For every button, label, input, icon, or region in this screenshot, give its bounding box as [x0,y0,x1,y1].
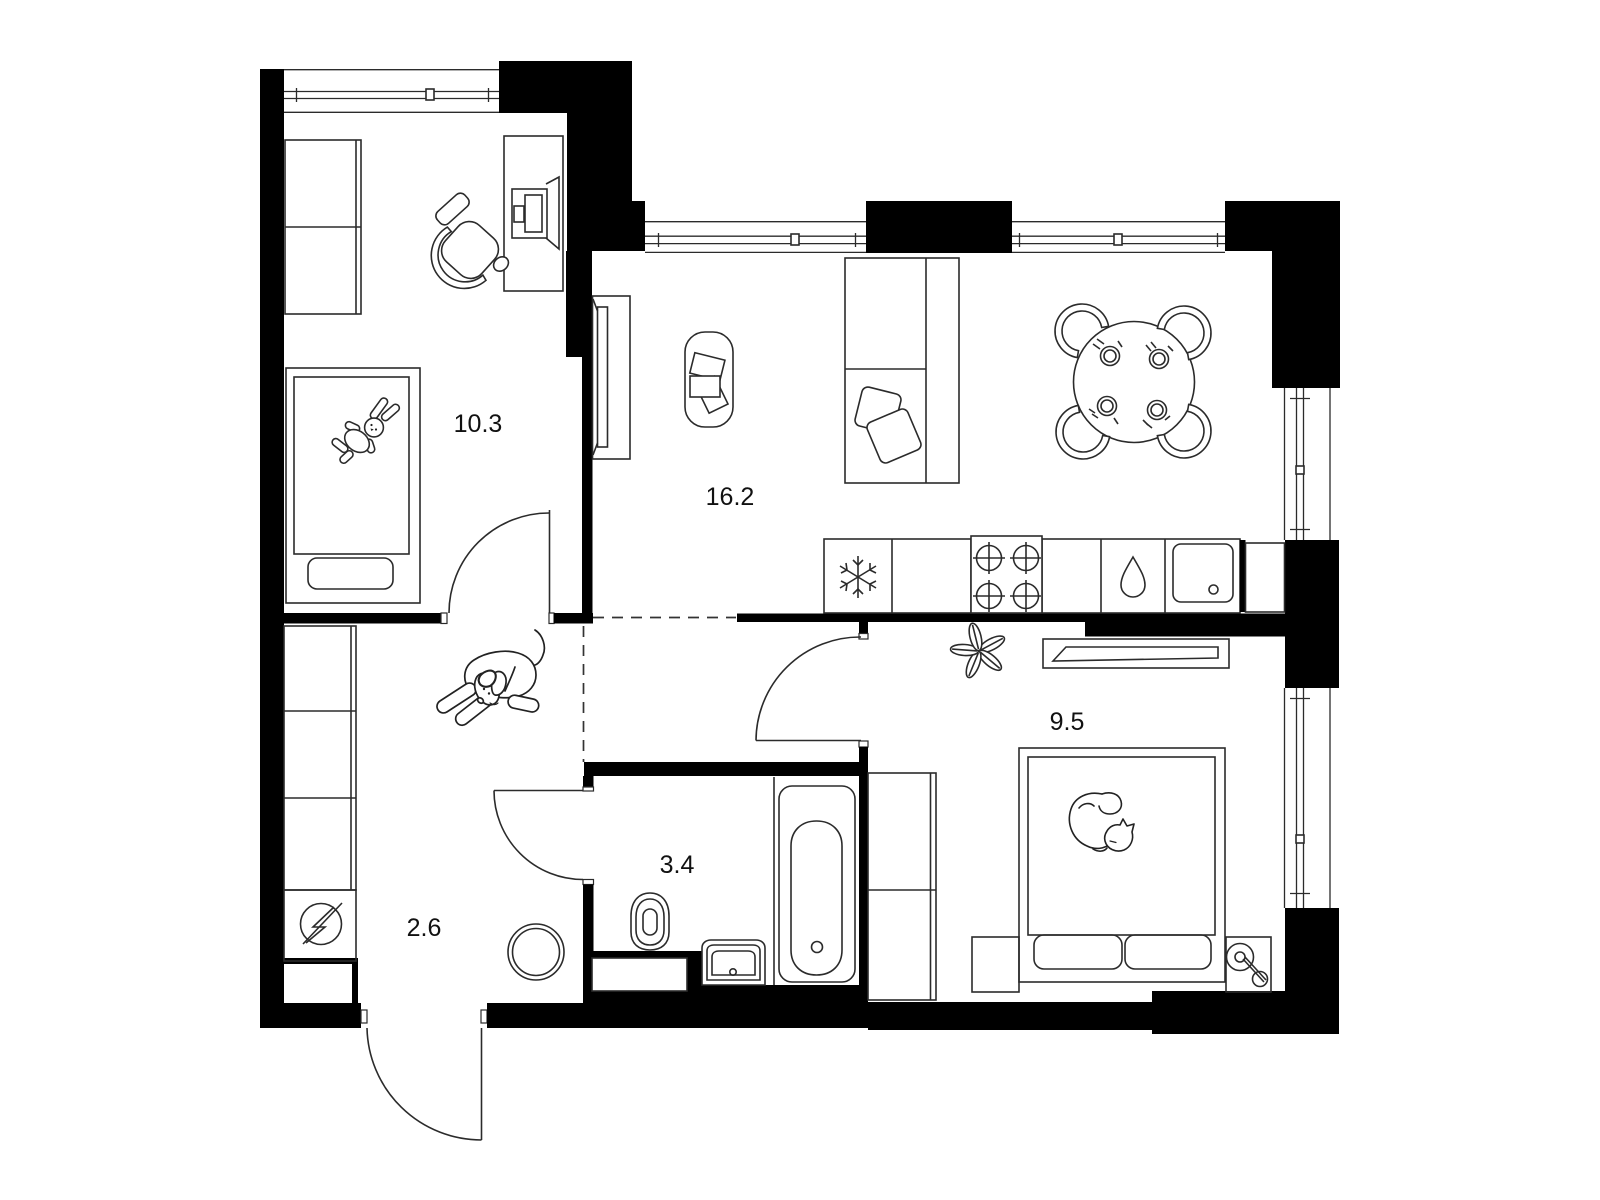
svg-text:9.5: 9.5 [1050,708,1085,736]
svg-text:2.6: 2.6 [407,914,442,942]
svg-text:10.3: 10.3 [454,410,503,438]
svg-text:3.4: 3.4 [660,851,695,879]
svg-text:16.2: 16.2 [706,483,755,511]
